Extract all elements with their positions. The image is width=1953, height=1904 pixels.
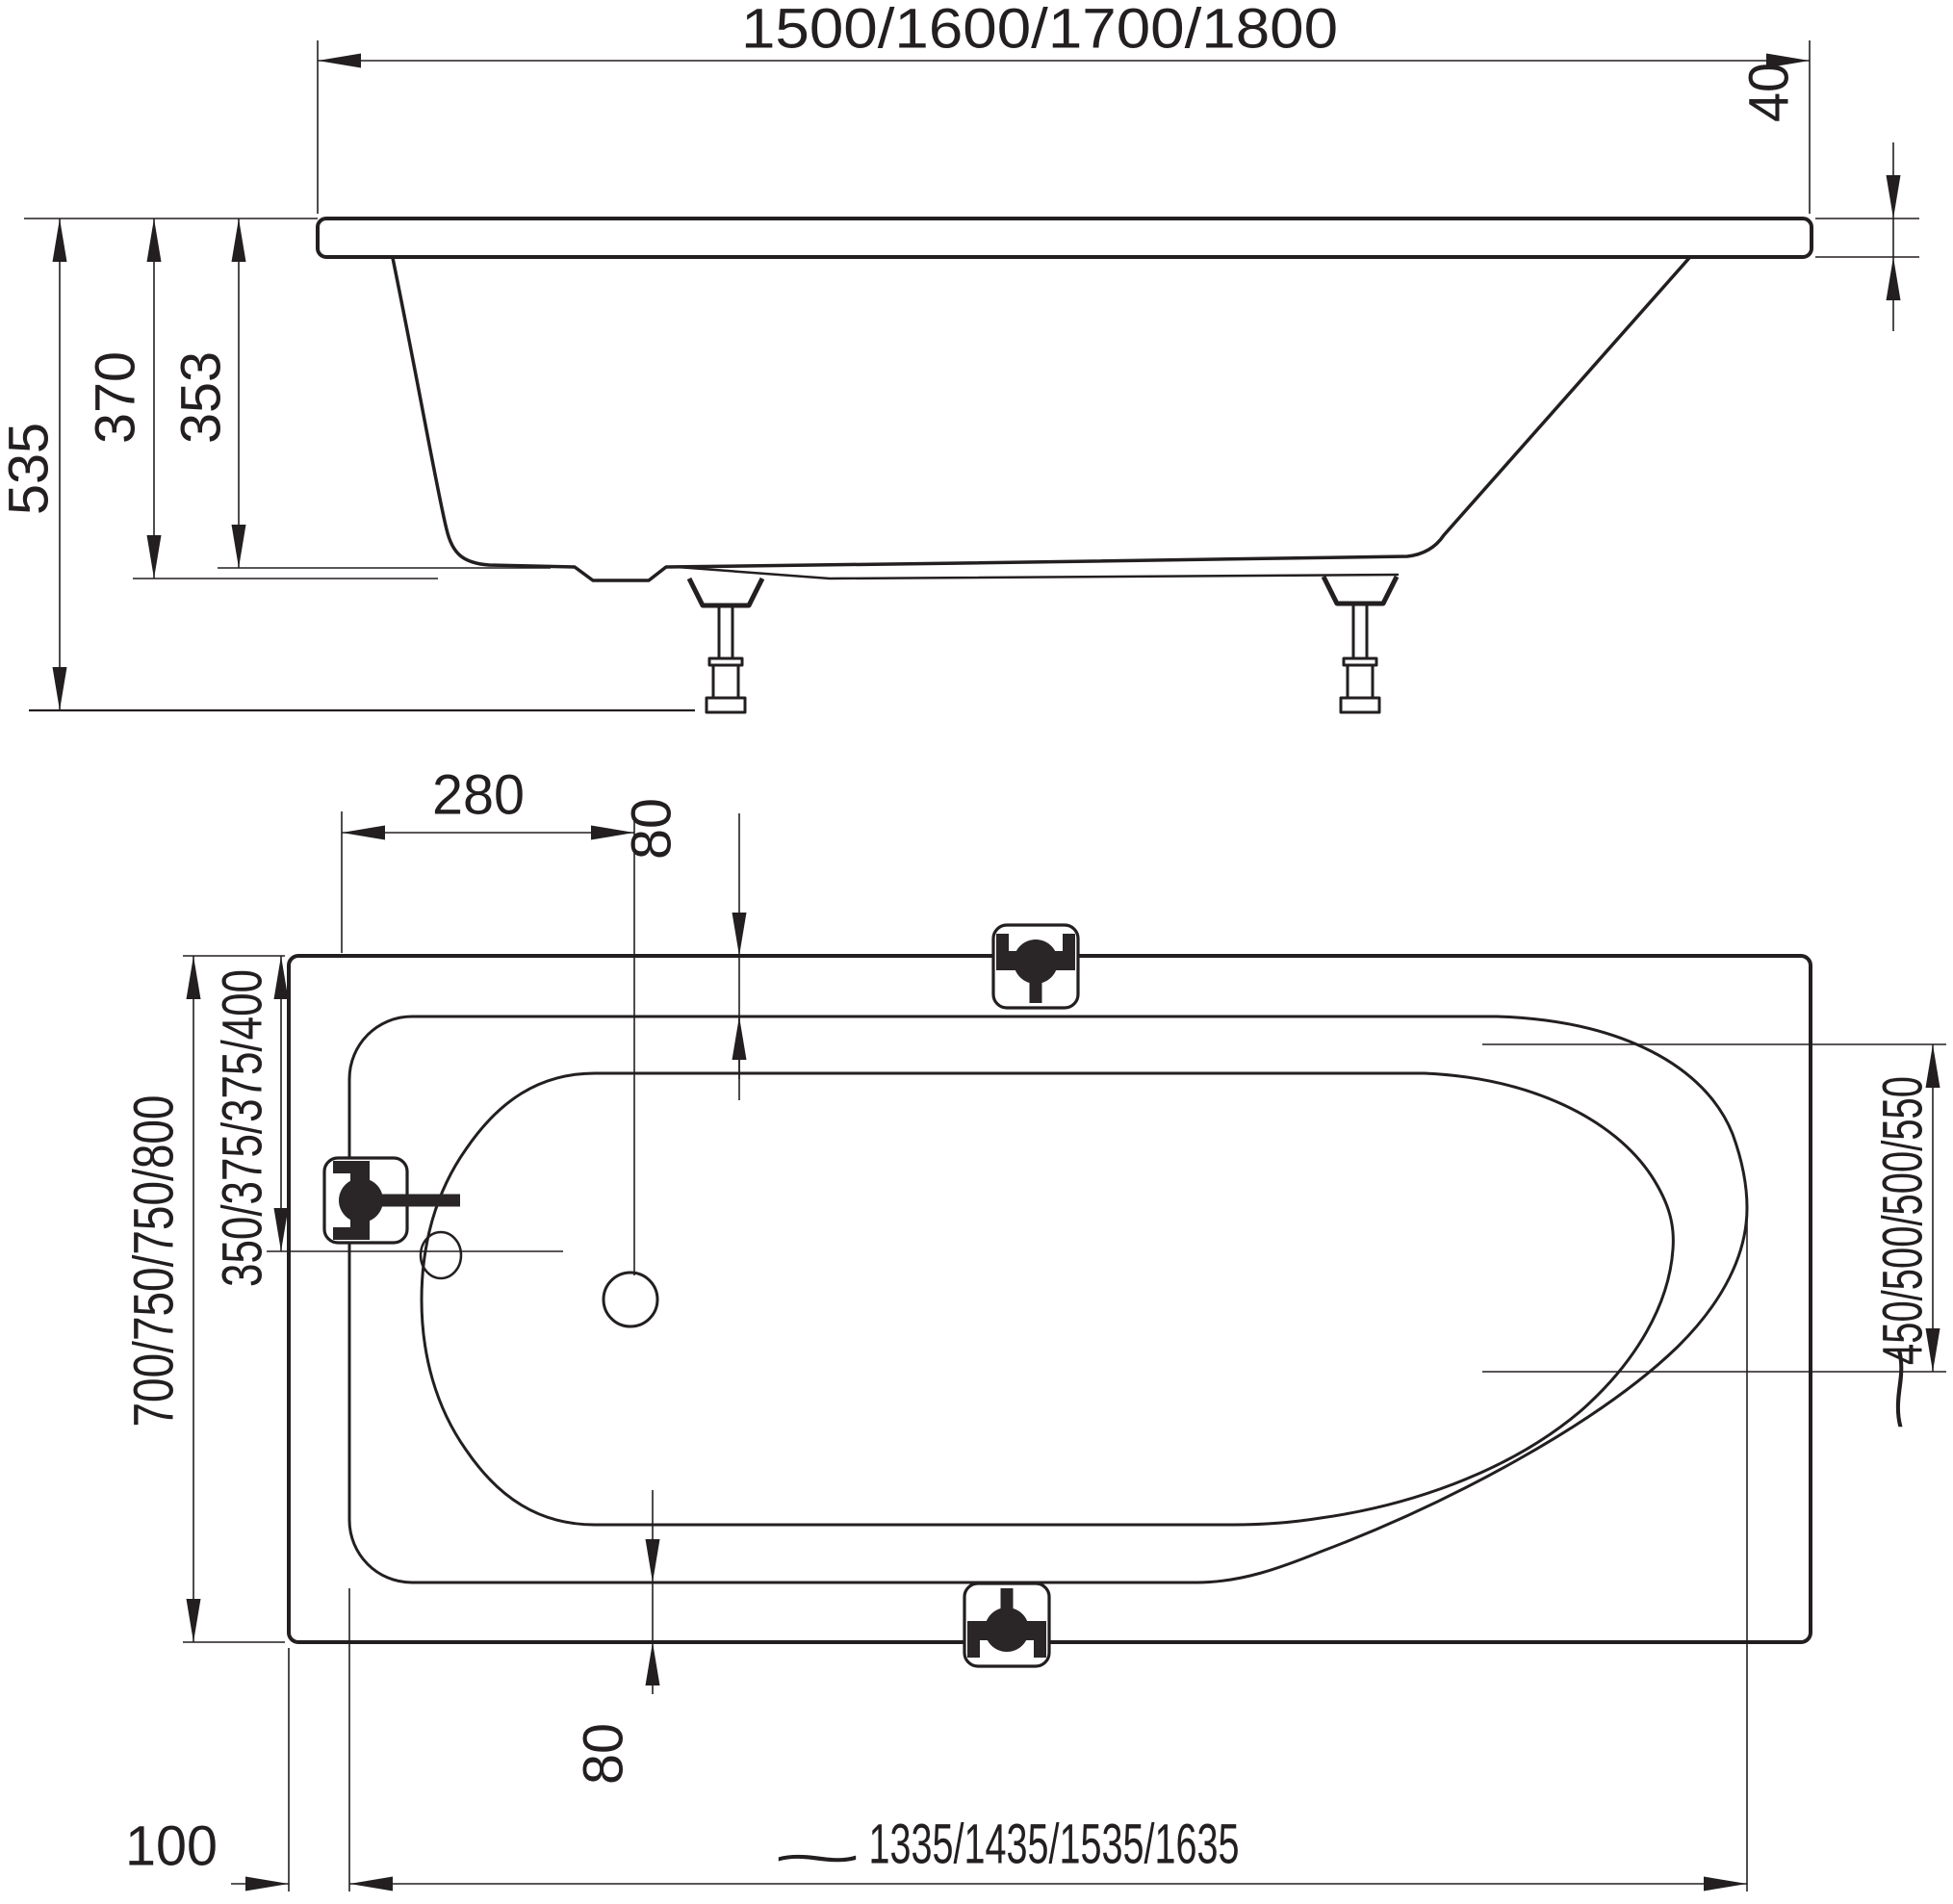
- dimension-drain-from-foot-end: 280: [342, 764, 634, 834]
- bathtub-drawing: 1500/1600/1700/1800 40 535 370 353: [0, 0, 1953, 1904]
- plan-inner-basin: [422, 1073, 1673, 1525]
- dimension-label-rim-inset-top: 80: [621, 798, 683, 860]
- approx-symbol: ~: [772, 1826, 863, 1891]
- approx-symbol: ~: [1867, 1343, 1932, 1434]
- leg-foot: [707, 698, 745, 712]
- side-view: 1500/1600/1700/1800 40 535 370 353: [0, 0, 1919, 712]
- dimension-rim-height: 370: [85, 219, 155, 579]
- dimension-label-drain-from-side: 350/375/375/400: [212, 969, 274, 1287]
- drain-hole: [604, 1273, 657, 1326]
- fitting-valve: [985, 1608, 1029, 1652]
- dimension-label-rim-inset-bottom: 80: [573, 1723, 635, 1785]
- dimension-label-inner-length: 1335/1435/1535/1635: [869, 1814, 1240, 1876]
- plan-view: 280 80 700/750/750/800 350/375/375/400 4…: [123, 764, 1947, 1892]
- dimension-rim-inset-top: 80: [621, 798, 740, 1079]
- tap-fitting-symbol: [964, 1583, 1049, 1666]
- plan-outer-edge: [289, 956, 1811, 1642]
- fitting-valve: [339, 1178, 383, 1222]
- support-leg: [689, 579, 762, 712]
- dimension-label-rim-thickness: 40: [1738, 63, 1801, 122]
- dimension-overall-width: 700/750/750/800: [123, 956, 194, 1642]
- support-leg: [1323, 577, 1397, 712]
- leg-body: [1348, 665, 1373, 698]
- dimension-head-end-width: 450/500/500/550 ~: [1867, 1044, 1935, 1434]
- drawing-sheet: 1500/1600/1700/1800 40 535 370 353: [0, 0, 1953, 1904]
- dimension-label-overall-length: 1500/1600/1700/1800: [741, 0, 1338, 61]
- dimension-label-overall-height: 535: [0, 423, 61, 515]
- leg-bracket: [689, 579, 762, 605]
- dimension-rim-inset-bottom: 80: [573, 1490, 654, 1785]
- plan-rim-opening: [349, 1016, 1747, 1582]
- tap-fitting-symbol: [993, 925, 1078, 1008]
- leg-foot: [1341, 698, 1379, 712]
- dimension-drain-from-side: 350/375/375/400: [212, 956, 282, 1287]
- leg-body: [713, 665, 738, 698]
- dimension-overall-height: 535: [0, 219, 61, 710]
- overflow-hole: [421, 1232, 461, 1278]
- support-rail: [677, 567, 1398, 579]
- dimension-label-shell-height: 353: [170, 351, 233, 444]
- dimension-foot-end-inset: 100: [125, 1815, 289, 1885]
- dimension-label-head-end-width: 450/500/500/550: [1872, 1076, 1935, 1365]
- dimension-rim-thickness: 40: [1738, 63, 1894, 331]
- side-tub-shell: [393, 258, 1689, 580]
- dimension-label-overall-width: 700/750/750/800: [123, 1095, 186, 1428]
- fitting-spout: [1001, 1588, 1014, 1610]
- side-tub-rim: [318, 219, 1812, 257]
- dimension-label-drain-from-foot-end: 280: [432, 764, 525, 827]
- dimension-label-rim-height: 370: [85, 351, 147, 444]
- fitting-spout: [380, 1195, 460, 1207]
- leg-bracket: [1323, 577, 1397, 604]
- fitting-valve: [1014, 939, 1058, 984]
- tap-fitting-symbol: [324, 1158, 460, 1243]
- dimension-label-foot-end-inset: 100: [125, 1815, 218, 1878]
- fitting-spout: [1030, 981, 1042, 1003]
- dimension-overall-length: 1500/1600/1700/1800: [318, 0, 1810, 61]
- dimension-shell-height: 353: [170, 219, 240, 568]
- dimension-inner-length: ~ 1335/1435/1535/1635: [349, 1814, 1747, 1891]
